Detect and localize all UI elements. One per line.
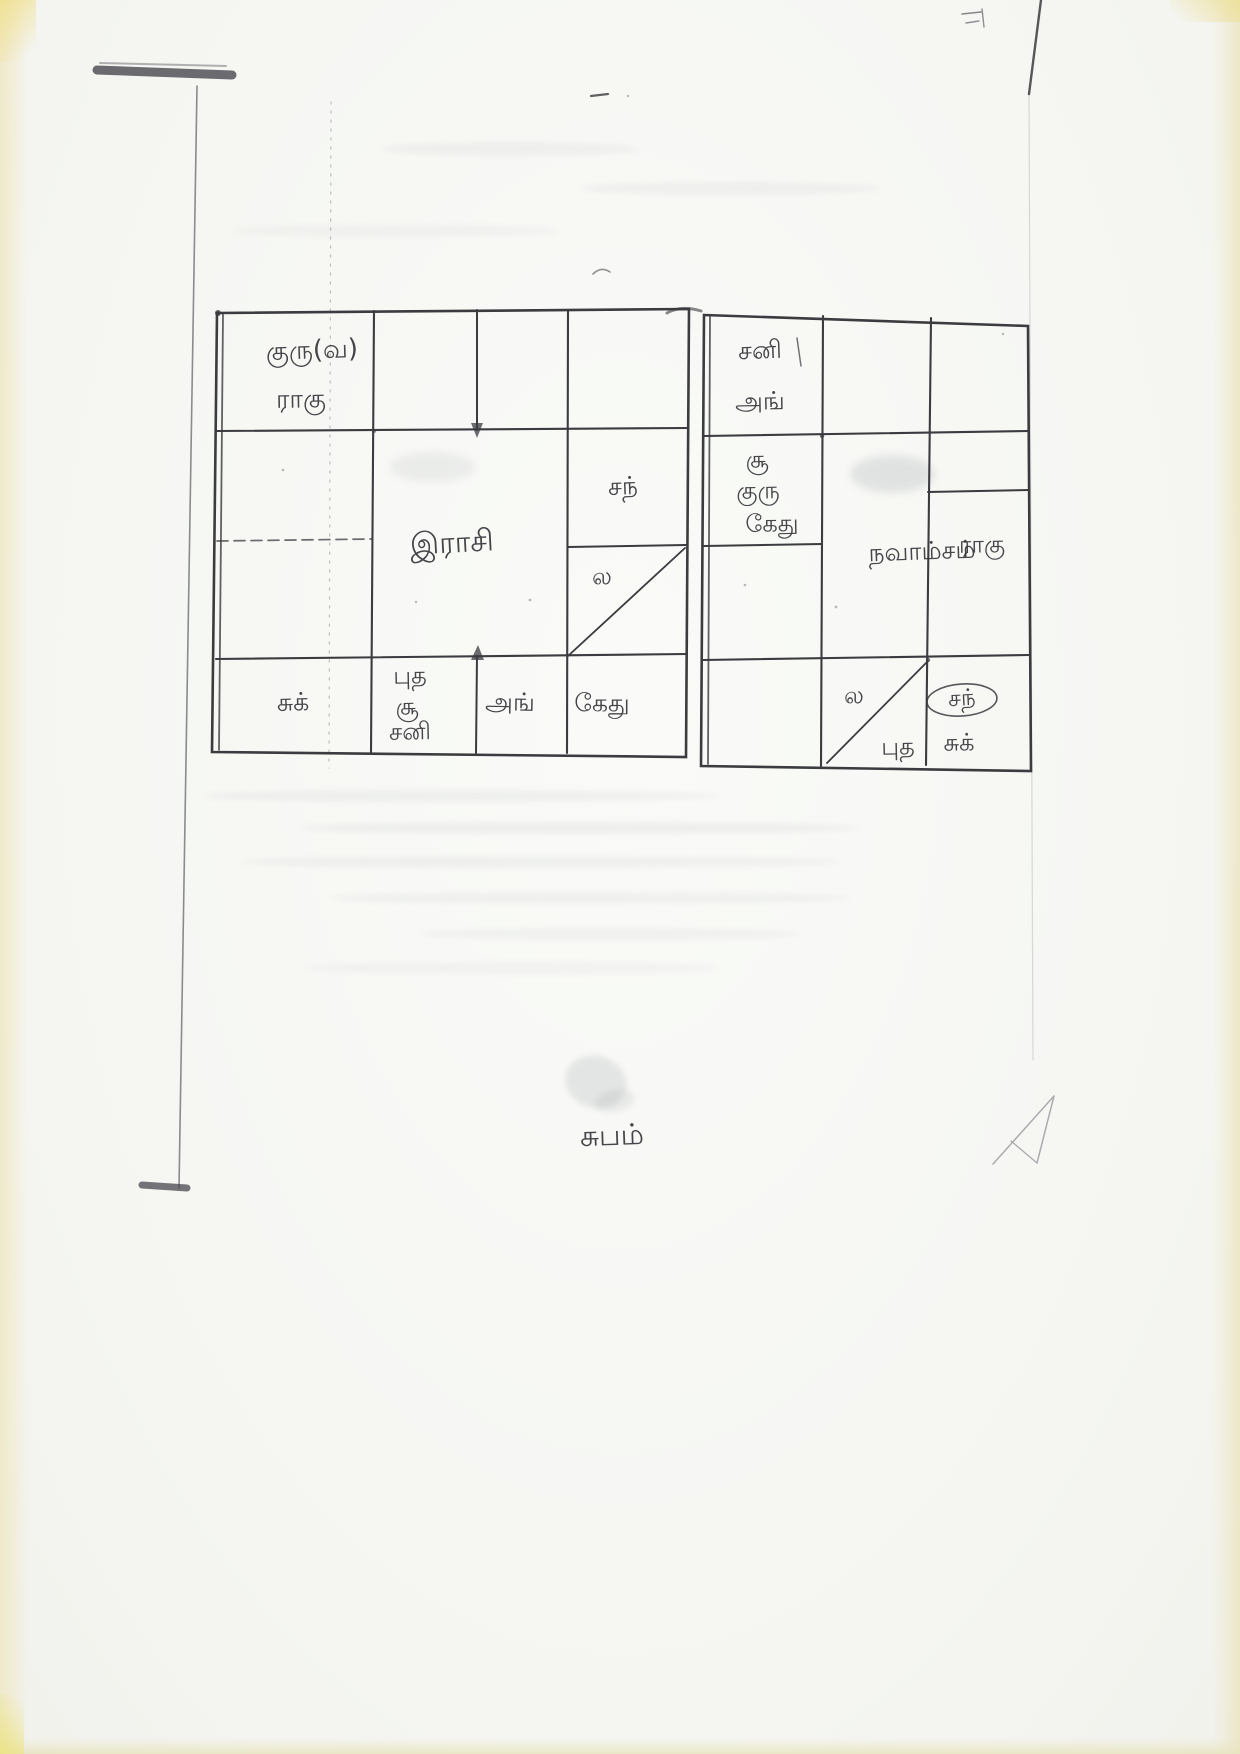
rasi-moon-label: சந்: [607, 471, 638, 505]
navamsam-mercury-label: புத: [881, 732, 915, 764]
rasi-chart: குரு(வ) ராகு இராசி சந் ல சுக் புத சூ சனி…: [212, 308, 690, 758]
rasi-saturn-label: சனி: [389, 717, 432, 749]
navamsam-sun-label: சூ: [745, 445, 769, 477]
rasi-ketu-label: கேது: [574, 689, 629, 722]
rasi-rahu-label: ராகு: [276, 384, 327, 418]
page-corner-bottom-left: [0, 1694, 24, 1754]
rasi-venus-label: சுக்: [276, 687, 309, 721]
rasi-mars-label: அங்: [485, 687, 535, 721]
navamsam-jupiter-label: குரு: [736, 476, 780, 508]
page-edge-left: [0, 0, 28, 1754]
navamsam-mars-label: அங்: [735, 386, 785, 420]
navamsam-ketu-label: கேது: [745, 509, 799, 541]
navamsam-lagna-label: ல: [844, 682, 864, 713]
page-edge-right: [1212, 0, 1240, 1754]
closing-text: சுபம்: [579, 1117, 644, 1157]
navamsam-rahu-label: ராகு: [959, 530, 1006, 562]
navamsam-saturn-label: சனி: [738, 335, 783, 370]
handdrawn-lines: [0, 0, 1240, 1754]
rasi-mercury-label: புத: [393, 661, 427, 693]
page-edge-bottom: [0, 1738, 1240, 1754]
scanned-page: குரு(வ) ராகு இராசி சந் ல சுக் புத சூ சனி…: [0, 0, 1240, 1754]
navamsam-chart: சனி அங் சூ குரு கேது நவாம்சம் ராகு ல புத…: [700, 312, 1032, 772]
rasi-jupiter-label: குரு(வ): [265, 334, 358, 370]
page-corner-top-right: [1170, 0, 1240, 22]
navamsam-moon-label: சந்: [948, 685, 977, 715]
rasi-chart-title: இராசி: [409, 523, 495, 566]
navamsam-venus-label: சுக்: [943, 728, 975, 760]
page-corner-top-left: [0, 0, 36, 62]
rasi-lagna-label: ல: [592, 563, 612, 594]
